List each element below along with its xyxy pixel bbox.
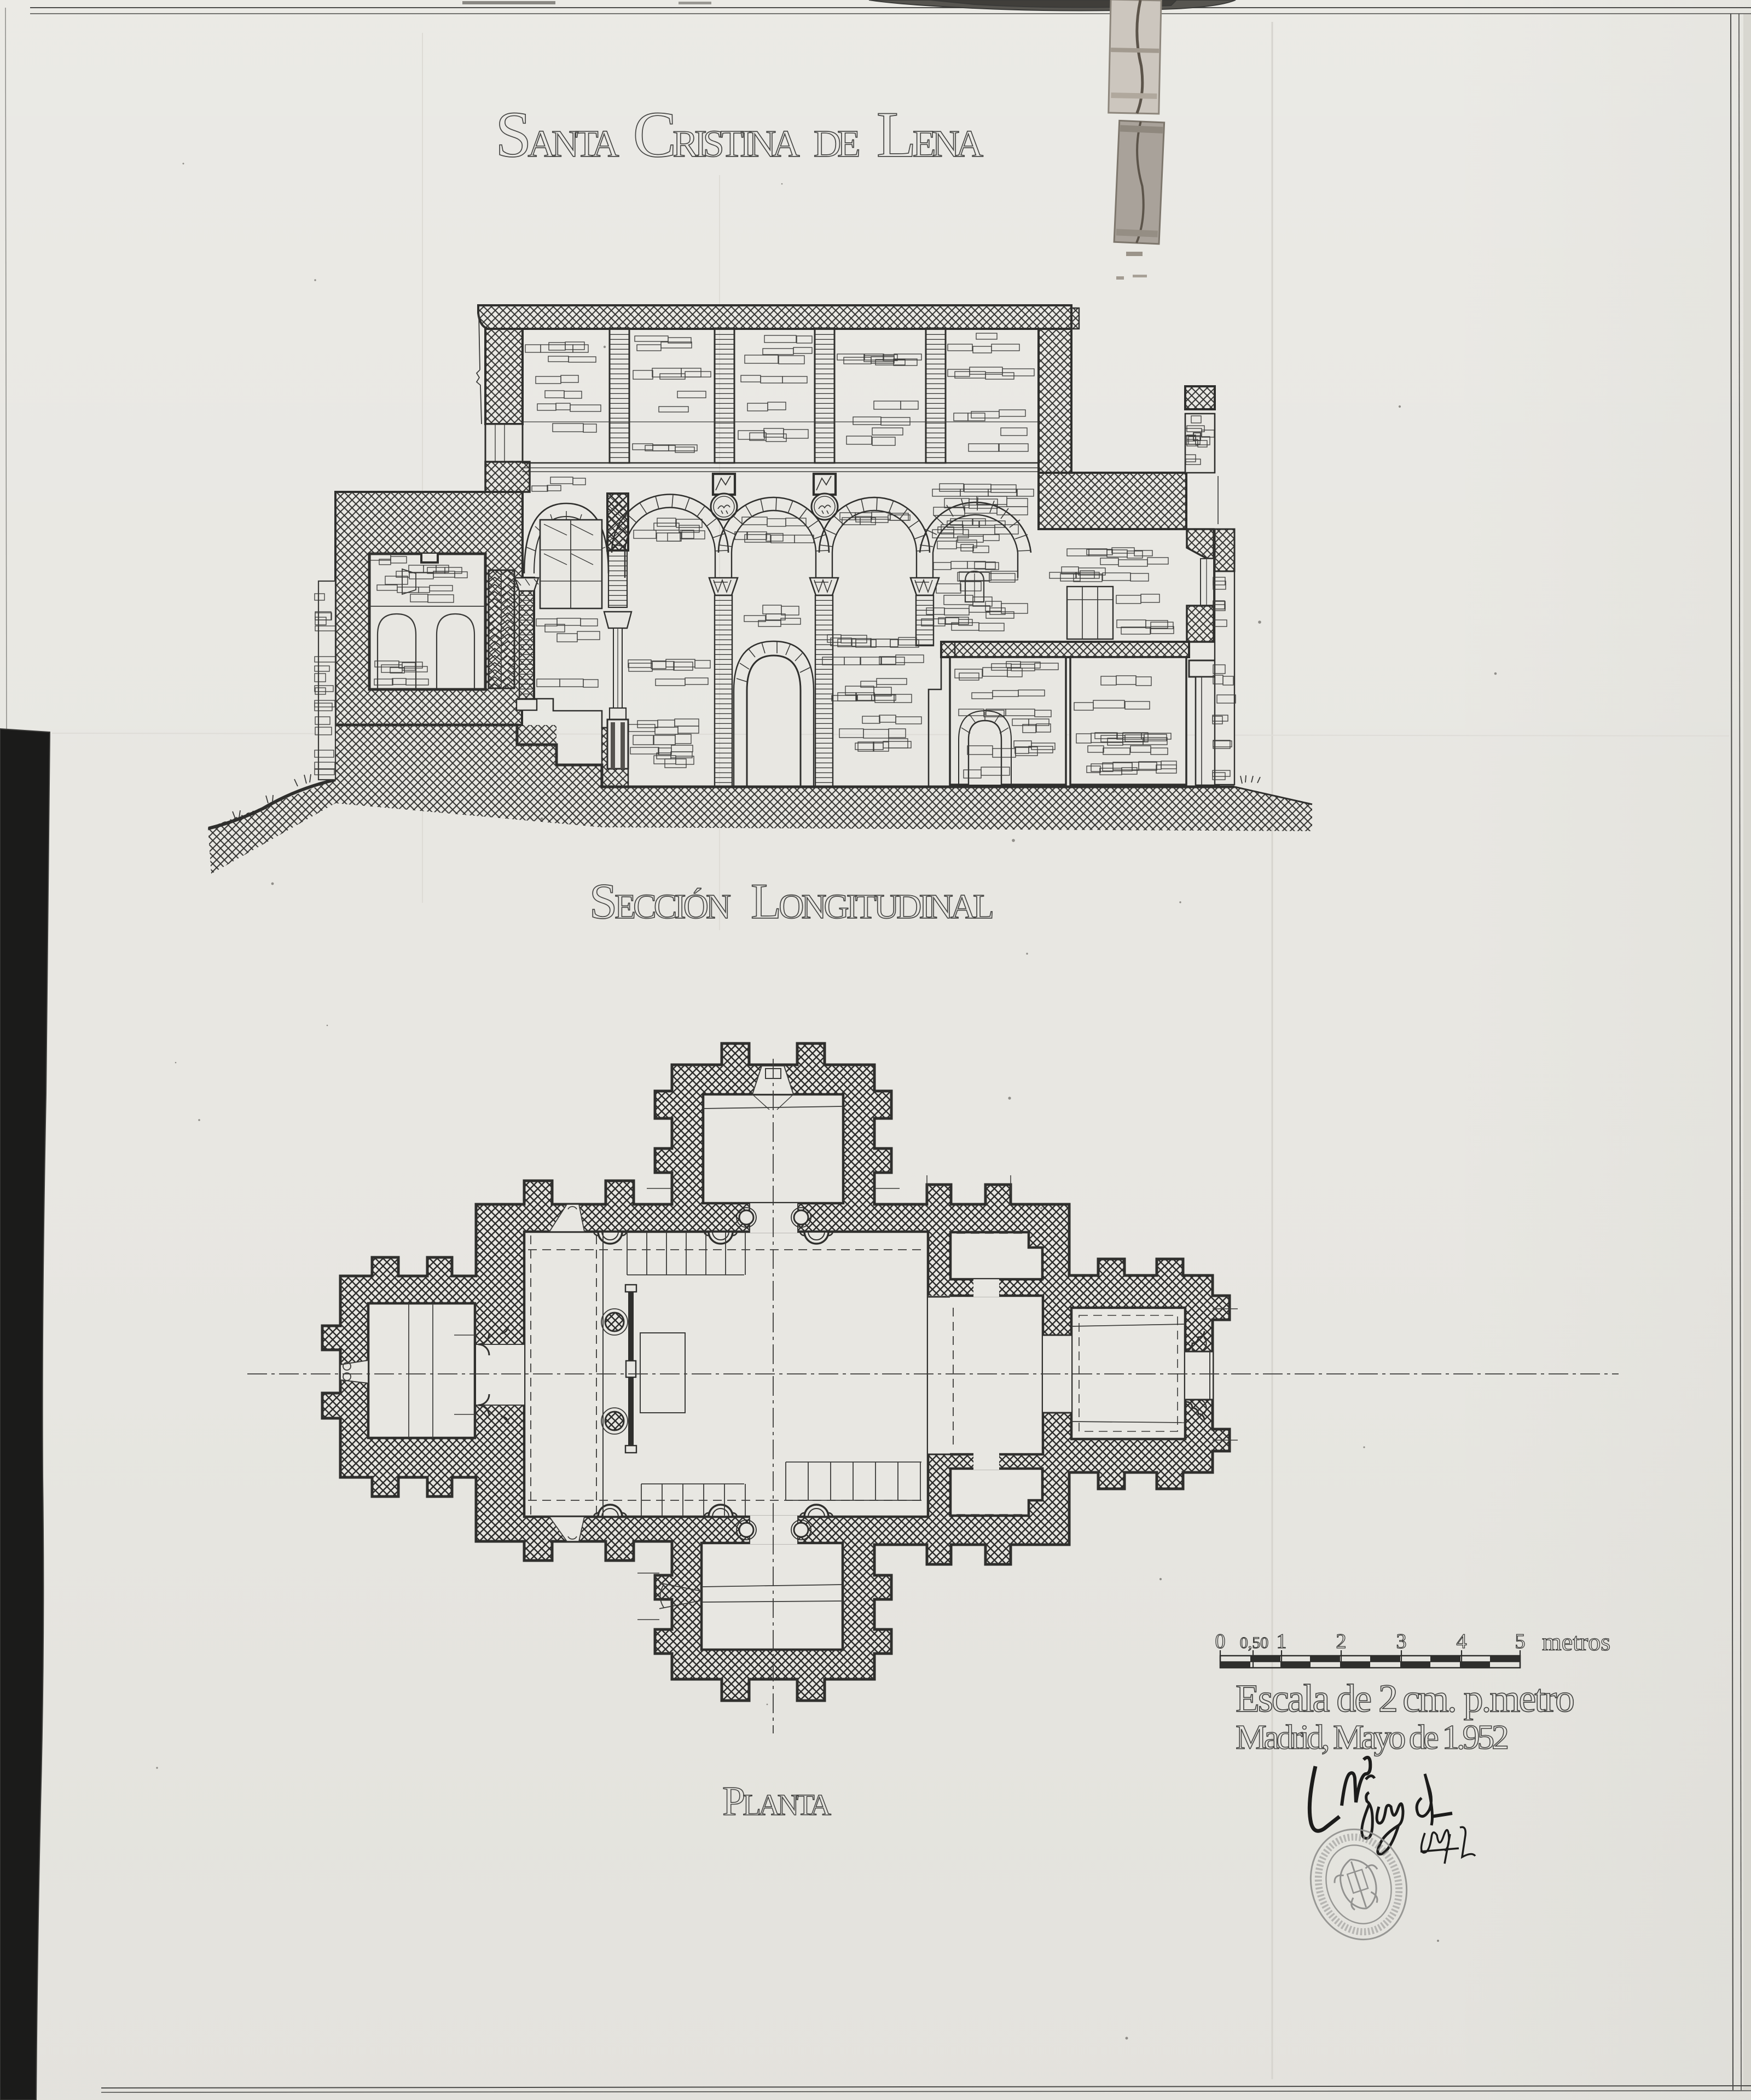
svg-text:metros: metros bbox=[1542, 1628, 1610, 1656]
svg-text:0,50: 0,50 bbox=[1240, 1634, 1269, 1652]
svg-text:Escala de 2 cm. p.metro: Escala de 2 cm. p.metro bbox=[1236, 1676, 1575, 1720]
svg-text:2: 2 bbox=[1336, 1630, 1347, 1653]
svg-text:1: 1 bbox=[1277, 1630, 1287, 1653]
svg-text:3: 3 bbox=[1396, 1630, 1407, 1653]
svg-text:Madrid, Mayo de 1.952: Madrid, Mayo de 1.952 bbox=[1236, 1718, 1509, 1756]
svg-text:4: 4 bbox=[1457, 1630, 1467, 1653]
svg-text:0: 0 bbox=[1215, 1630, 1226, 1653]
svg-text:5: 5 bbox=[1515, 1630, 1526, 1653]
